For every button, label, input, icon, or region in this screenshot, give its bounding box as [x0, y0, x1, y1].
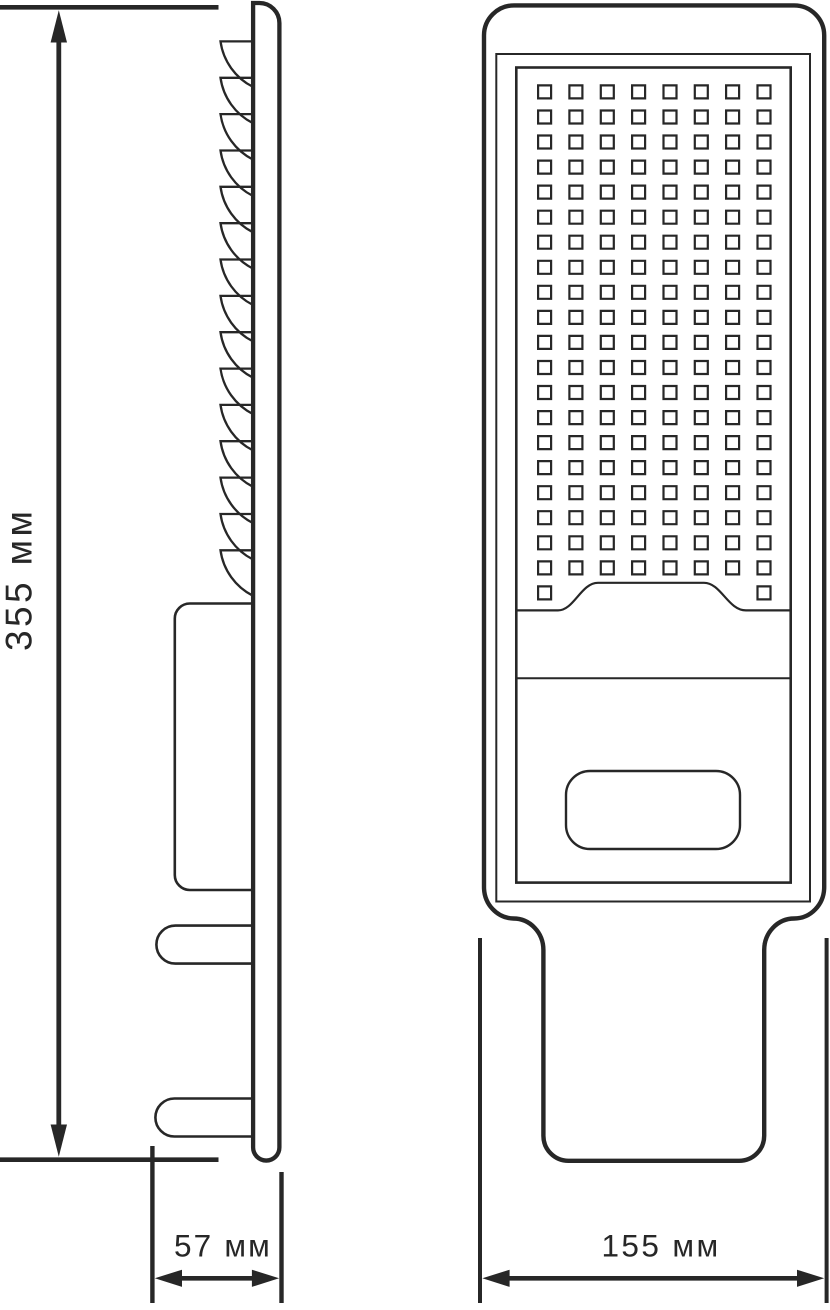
svg-text:155 мм: 155 мм	[601, 1227, 720, 1263]
svg-text:355 мм: 355 мм	[0, 508, 40, 651]
svg-text:57 мм: 57 мм	[174, 1227, 272, 1263]
